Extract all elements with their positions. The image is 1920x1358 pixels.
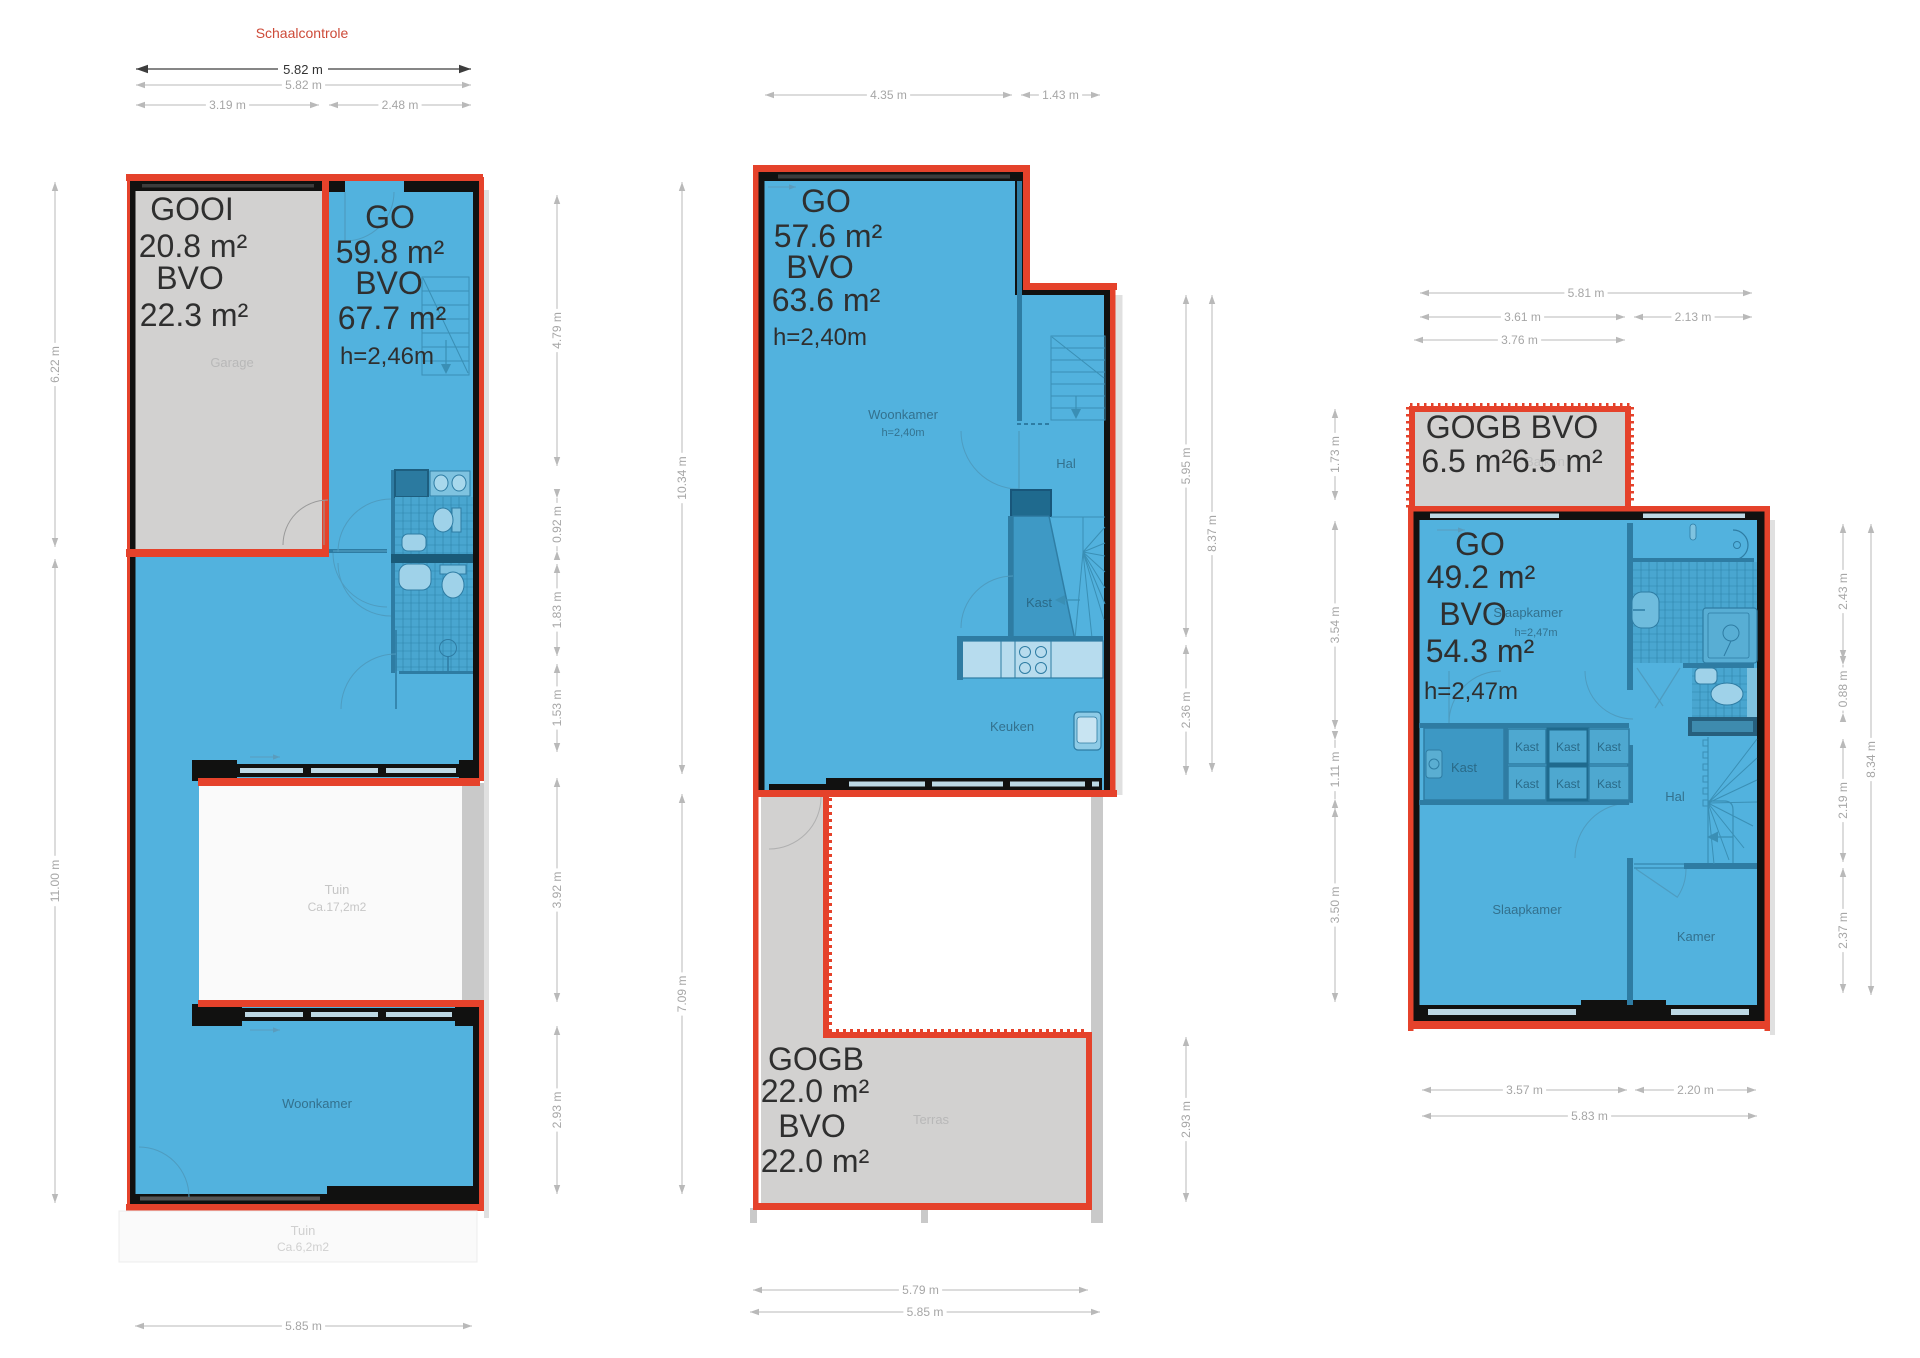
svg-text:Keuken: Keuken <box>990 719 1034 734</box>
svg-text:5.95 m: 5.95 m <box>1179 448 1193 485</box>
svg-text:7.09 m: 7.09 m <box>675 976 689 1013</box>
svg-text:5.85 m: 5.85 m <box>285 1319 322 1333</box>
svg-text:4.35 m: 4.35 m <box>870 88 907 102</box>
svg-text:0.88 m: 0.88 m <box>1836 671 1850 708</box>
svg-text:5.81 m: 5.81 m <box>1568 286 1605 300</box>
svg-text:10.34 m: 10.34 m <box>675 456 689 499</box>
svg-text:2.93 m: 2.93 m <box>550 1092 564 1129</box>
svg-text:Kast: Kast <box>1451 760 1477 775</box>
svg-text:1.11 m: 1.11 m <box>1328 752 1342 788</box>
svg-text:BVO: BVO <box>786 249 854 285</box>
svg-text:Kast: Kast <box>1556 777 1581 791</box>
svg-text:2.36 m: 2.36 m <box>1179 692 1193 729</box>
svg-text:1.43 m: 1.43 m <box>1042 88 1079 102</box>
svg-text:3.92 m: 3.92 m <box>550 872 564 909</box>
svg-text:3.57 m: 3.57 m <box>1506 1083 1543 1097</box>
svg-text:GO: GO <box>801 183 851 219</box>
svg-text:Tuin: Tuin <box>291 1223 316 1238</box>
svg-text:3.19 m: 3.19 m <box>209 98 246 112</box>
svg-text:3.50 m: 3.50 m <box>1328 887 1342 924</box>
svg-text:8.37 m: 8.37 m <box>1205 515 1219 552</box>
svg-text:8.34 m: 8.34 m <box>1864 741 1878 778</box>
svg-text:Kast: Kast <box>1597 777 1622 791</box>
svg-text:Ca.17,2m2: Ca.17,2m2 <box>308 900 367 914</box>
svg-text:Kast: Kast <box>1026 595 1052 610</box>
svg-text:0.92 m: 0.92 m <box>550 506 564 543</box>
svg-text:h=2,40m: h=2,40m <box>773 324 867 351</box>
svg-text:5.83 m: 5.83 m <box>1571 1109 1608 1123</box>
svg-text:6.5 m²6.5 m²: 6.5 m²6.5 m² <box>1421 443 1603 479</box>
svg-text:BVO: BVO <box>156 260 224 296</box>
svg-text:1.83 m: 1.83 m <box>550 592 564 629</box>
svg-text:2.20 m: 2.20 m <box>1677 1083 1714 1097</box>
svg-text:Schaalcontrole: Schaalcontrole <box>256 25 349 41</box>
svg-text:2.13 m: 2.13 m <box>1675 310 1712 324</box>
svg-text:22.3 m²: 22.3 m² <box>140 297 249 333</box>
svg-text:GOGB BVO: GOGB BVO <box>1426 409 1598 445</box>
svg-text:4.79 m: 4.79 m <box>550 312 564 349</box>
svg-text:2.43 m: 2.43 m <box>1836 573 1850 610</box>
svg-text:1.53 m: 1.53 m <box>550 690 564 727</box>
svg-text:2.93 m: 2.93 m <box>1179 1101 1193 1138</box>
svg-text:GO: GO <box>1455 526 1505 562</box>
svg-text:GO: GO <box>365 199 415 235</box>
svg-text:5.82 m: 5.82 m <box>285 78 322 92</box>
svg-text:54.3 m²: 54.3 m² <box>1426 633 1535 669</box>
svg-text:h=2,46m: h=2,46m <box>340 343 434 370</box>
svg-text:BVO: BVO <box>778 1108 846 1144</box>
svg-text:Kast: Kast <box>1515 777 1540 791</box>
svg-text:BVO: BVO <box>1439 596 1507 632</box>
svg-text:5.79 m: 5.79 m <box>902 1283 939 1297</box>
svg-text:Terras: Terras <box>913 1112 950 1127</box>
svg-text:49.2 m²: 49.2 m² <box>1427 559 1536 595</box>
svg-text:20.8 m²: 20.8 m² <box>139 228 248 264</box>
svg-text:Kast: Kast <box>1597 740 1622 754</box>
svg-text:22.0 m²: 22.0 m² <box>761 1073 870 1109</box>
svg-text:2.48 m: 2.48 m <box>382 98 419 112</box>
svg-text:67.7 m²: 67.7 m² <box>338 300 447 336</box>
svg-text:Ca.6,2m2: Ca.6,2m2 <box>277 1240 329 1254</box>
svg-text:22.0 m²: 22.0 m² <box>761 1143 870 1179</box>
svg-text:Kast: Kast <box>1515 740 1540 754</box>
svg-text:Hal: Hal <box>1056 456 1076 471</box>
svg-text:BVO: BVO <box>355 265 423 301</box>
svg-text:11.00 m: 11.00 m <box>48 860 62 902</box>
svg-text:h=2,47m: h=2,47m <box>1424 678 1518 705</box>
svg-text:Hal: Hal <box>1665 789 1685 804</box>
svg-text:5.85 m: 5.85 m <box>907 1305 944 1319</box>
svg-text:2.37 m: 2.37 m <box>1836 912 1850 949</box>
svg-text:h=2,40m: h=2,40m <box>881 427 924 439</box>
svg-text:Kast: Kast <box>1556 740 1581 754</box>
svg-text:2.19 m: 2.19 m <box>1836 782 1850 819</box>
svg-text:Woonkamer: Woonkamer <box>868 407 939 422</box>
svg-text:Garage: Garage <box>210 355 253 370</box>
svg-text:Woonkamer: Woonkamer <box>282 1096 353 1111</box>
svg-text:3.76 m: 3.76 m <box>1501 333 1538 347</box>
svg-text:Slaapkamer: Slaapkamer <box>1492 902 1562 917</box>
svg-text:GOGB: GOGB <box>768 1041 864 1077</box>
svg-text:3.61 m: 3.61 m <box>1504 310 1541 324</box>
svg-text:6.22 m: 6.22 m <box>48 346 62 383</box>
svg-text:Tuin: Tuin <box>325 882 350 897</box>
svg-text:63.6 m²: 63.6 m² <box>772 282 881 318</box>
svg-text:3.54 m: 3.54 m <box>1328 607 1342 644</box>
svg-text:Kamer: Kamer <box>1677 929 1716 944</box>
svg-text:GOOI: GOOI <box>150 191 234 227</box>
svg-text:5.82 m: 5.82 m <box>283 62 323 77</box>
svg-text:1.73 m: 1.73 m <box>1328 436 1342 473</box>
